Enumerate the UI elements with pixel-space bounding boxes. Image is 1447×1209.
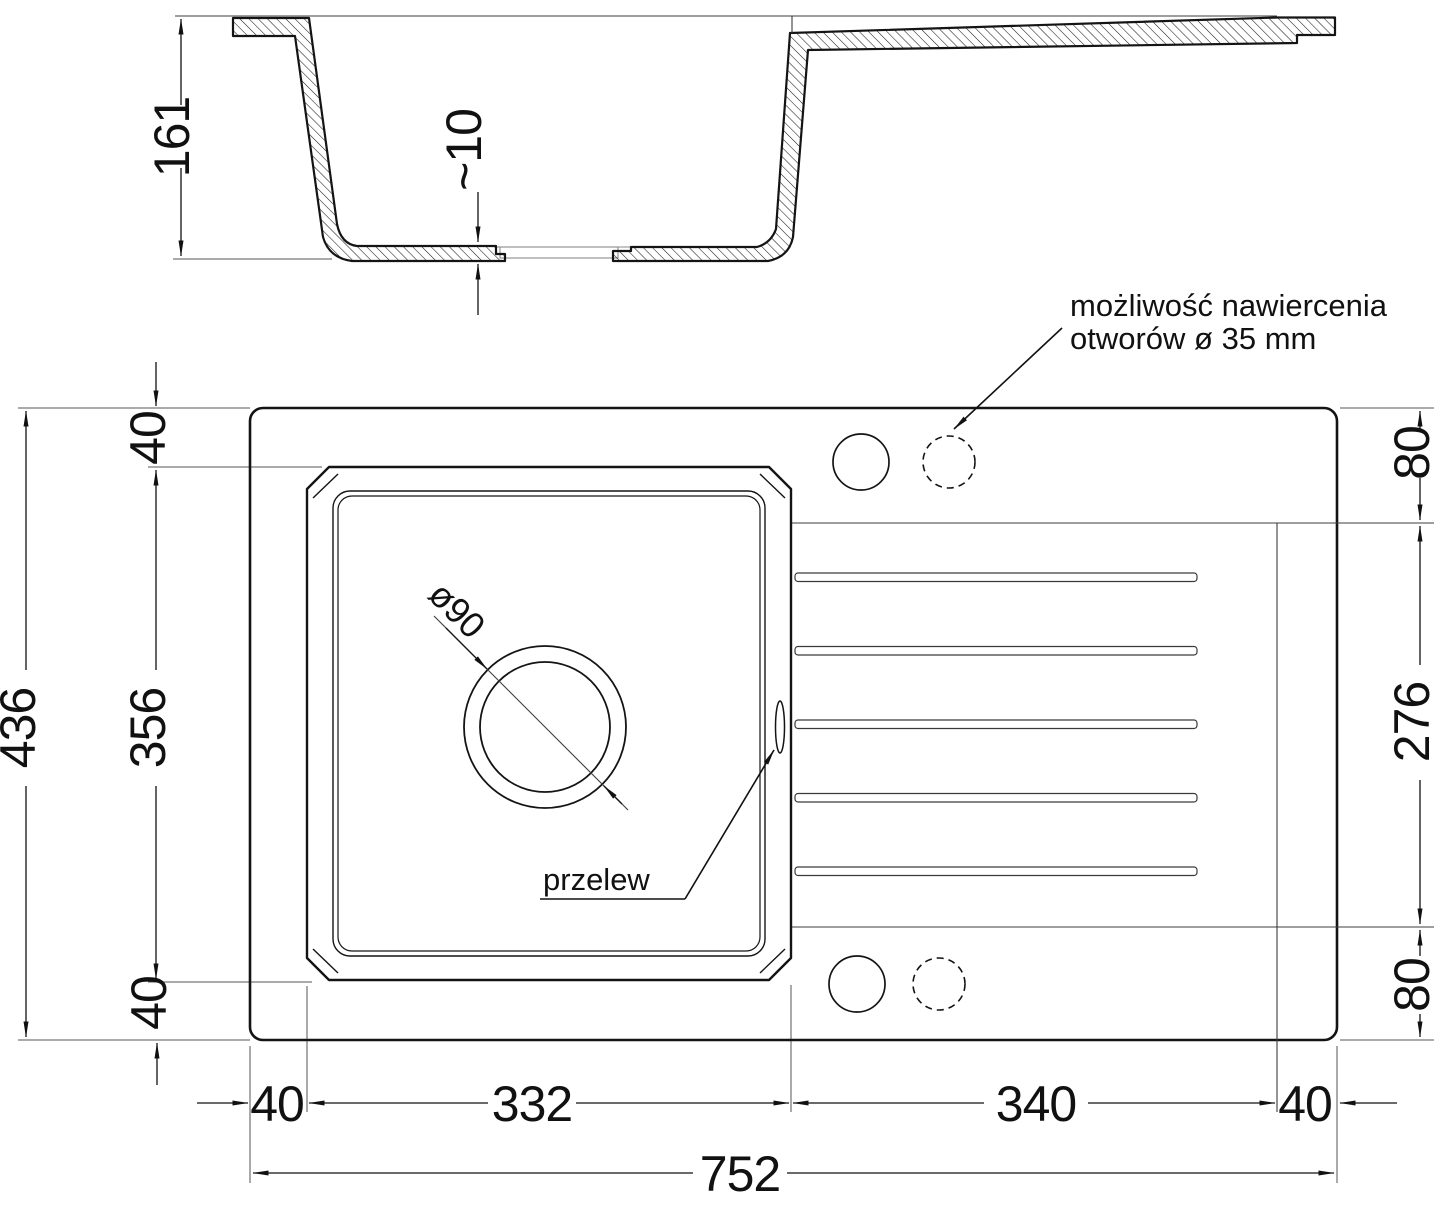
dims-right: 80 276 80 <box>1384 411 1440 1037</box>
dim-bowl-width: 332 <box>492 1076 572 1132</box>
section-drain-recess <box>500 247 618 258</box>
section-right-wall-drainboard <box>613 18 1335 262</box>
note-line-1: możliwość nawiercenia <box>1070 288 1388 323</box>
dim-bottom-rim: 40 <box>121 976 177 1030</box>
section-view: 161 ~10 <box>144 16 1335 315</box>
optional-hole-bottom <box>913 958 965 1010</box>
drawing-canvas: 161 ~10 <box>0 0 1447 1209</box>
faucet-hole-top <box>833 434 889 490</box>
dim-drainer-width: 340 <box>996 1076 1076 1132</box>
plan-view: ø90 przelew możliwość nawiercenia otworó… <box>18 288 1434 1183</box>
drain-diameter-label: ø90 <box>421 573 494 646</box>
groove-5 <box>795 867 1197 876</box>
sink-technical-drawing: 161 ~10 <box>0 0 1447 1209</box>
overflow-label: przelew <box>543 862 650 897</box>
groove-2 <box>795 647 1197 656</box>
dims-bottom: 40 332 340 40 752 <box>197 1076 1397 1202</box>
dims-left: 436 40 356 40 <box>0 362 177 1085</box>
overflow-slot <box>776 701 785 753</box>
note-line-2: otworów ø 35 mm <box>1070 321 1316 356</box>
dim-left-rim: 40 <box>250 1076 304 1132</box>
drain-dim-arrow-2 <box>604 786 622 804</box>
dim-right-rim: 40 <box>1278 1076 1332 1132</box>
bowl-corner-chamfers <box>313 474 785 973</box>
dim-bowl-height: 356 <box>120 688 176 768</box>
dim-right-bottom: 80 <box>1384 958 1440 1012</box>
dim-right-middle: 276 <box>1384 682 1440 762</box>
groove-4 <box>795 794 1197 803</box>
drainboard-grooves <box>795 573 1197 876</box>
dim-right-top: 80 <box>1384 426 1440 480</box>
dim-depth-label: 161 <box>144 97 200 177</box>
dim-top-rim: 40 <box>120 411 176 465</box>
dim-thickness-label: ~10 <box>436 109 492 191</box>
faucet-hole-bottom <box>829 956 885 1012</box>
overflow-leader-arrow <box>685 750 774 899</box>
groove-1 <box>795 573 1197 582</box>
bowl-outer-edge <box>307 467 791 980</box>
dim-total-height: 436 <box>0 688 46 768</box>
groove-3 <box>795 720 1197 729</box>
note-leader-arrow <box>954 328 1062 429</box>
dim-total-width: 752 <box>700 1146 780 1202</box>
optional-hole-top <box>923 436 975 488</box>
